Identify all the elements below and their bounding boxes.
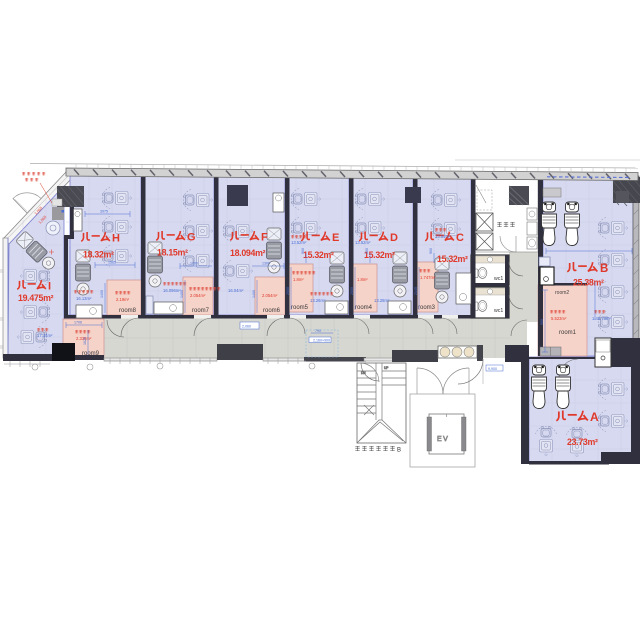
svg-text:900: 900 [365, 248, 369, 254]
svg-text:2,160×900: 2,160×900 [313, 339, 330, 343]
svg-text:room2: room2 [555, 290, 569, 296]
svg-text:25.38m²: 25.38m² [573, 278, 604, 288]
svg-text:1300: 1300 [190, 262, 198, 266]
svg-text:1.8m²: 1.8m² [293, 277, 304, 282]
svg-text:1.747m²: 1.747m² [420, 275, 436, 280]
svg-text:C: C [456, 232, 464, 244]
svg-text:A: A [590, 410, 599, 424]
svg-text:18.15m²: 18.15m² [157, 248, 188, 258]
svg-text:1706: 1706 [74, 321, 82, 325]
svg-text:UP: UP [384, 366, 388, 370]
svg-text:F: F [261, 232, 268, 244]
svg-text:13.52m²: 13.52m² [355, 240, 371, 245]
svg-text:15.32m²: 15.32m² [303, 250, 334, 260]
svg-text:19.475m²: 19.475m² [18, 293, 54, 303]
svg-text:1620: 1620 [83, 337, 87, 345]
svg-text:900: 900 [540, 319, 544, 325]
svg-text:900: 900 [429, 248, 433, 254]
svg-text:1300: 1300 [262, 262, 270, 266]
svg-text:2.054m²: 2.054m² [262, 293, 278, 298]
svg-text:EV: EV [437, 436, 449, 443]
svg-text:23.73m²: 23.73m² [567, 437, 598, 447]
svg-text:1400: 1400 [252, 290, 256, 298]
svg-text:2145: 2145 [414, 287, 418, 295]
svg-text:wc1: wc1 [494, 276, 503, 282]
svg-text:room7: room7 [192, 308, 210, 314]
svg-text:B: B [600, 263, 608, 275]
svg-text:16.096m²: 16.096m² [163, 288, 181, 293]
svg-text:3975: 3975 [100, 210, 108, 214]
svg-text:2.054m²: 2.054m² [190, 293, 206, 298]
svg-text:15.32m²: 15.32m² [437, 254, 468, 264]
svg-text:13.28m²: 13.28m² [374, 298, 390, 303]
svg-text:16.04m²: 16.04m² [228, 288, 244, 293]
svg-text:9,900: 9,900 [488, 367, 497, 371]
svg-text:room1: room1 [559, 330, 577, 336]
svg-text:2000: 2000 [350, 287, 354, 295]
svg-text:D: D [390, 232, 398, 244]
svg-text:H: H [112, 233, 120, 245]
svg-text:I: I [48, 281, 51, 293]
svg-text:18.32m²: 18.32m² [83, 250, 114, 260]
svg-text:room9: room9 [82, 351, 100, 357]
svg-text:G: G [187, 232, 195, 244]
svg-text:17.14m²: 17.14m² [37, 333, 53, 338]
svg-text:13.52m²: 13.52m² [291, 240, 307, 245]
svg-text:790: 790 [315, 329, 321, 333]
svg-text:room5: room5 [291, 305, 309, 311]
svg-text:room4: room4 [355, 305, 373, 311]
svg-text:1400: 1400 [180, 290, 184, 298]
svg-text:900: 900 [301, 248, 305, 254]
svg-text:5.523m²: 5.523m² [551, 316, 567, 321]
svg-text:room3: room3 [418, 305, 436, 311]
svg-text:1565: 1565 [108, 261, 116, 265]
svg-text:wc1: wc1 [494, 308, 503, 314]
svg-text:13.54m²: 13.54m² [435, 234, 451, 239]
svg-text:1400: 1400 [100, 290, 104, 298]
svg-text:16.13m²: 16.13m² [76, 296, 92, 301]
svg-text:13.26m²: 13.26m² [310, 298, 326, 303]
svg-text:E: E [332, 232, 339, 244]
svg-text:room8: room8 [119, 308, 137, 314]
svg-text:2,060: 2,060 [242, 324, 251, 328]
svg-text:18.094m²: 18.094m² [230, 248, 266, 258]
svg-text:room6: room6 [263, 308, 281, 314]
svg-text:2.19m²: 2.19m² [116, 297, 130, 302]
svg-text:B: B [397, 448, 401, 454]
svg-text:2000: 2000 [286, 287, 290, 295]
svg-text:1.8m²: 1.8m² [357, 277, 368, 282]
